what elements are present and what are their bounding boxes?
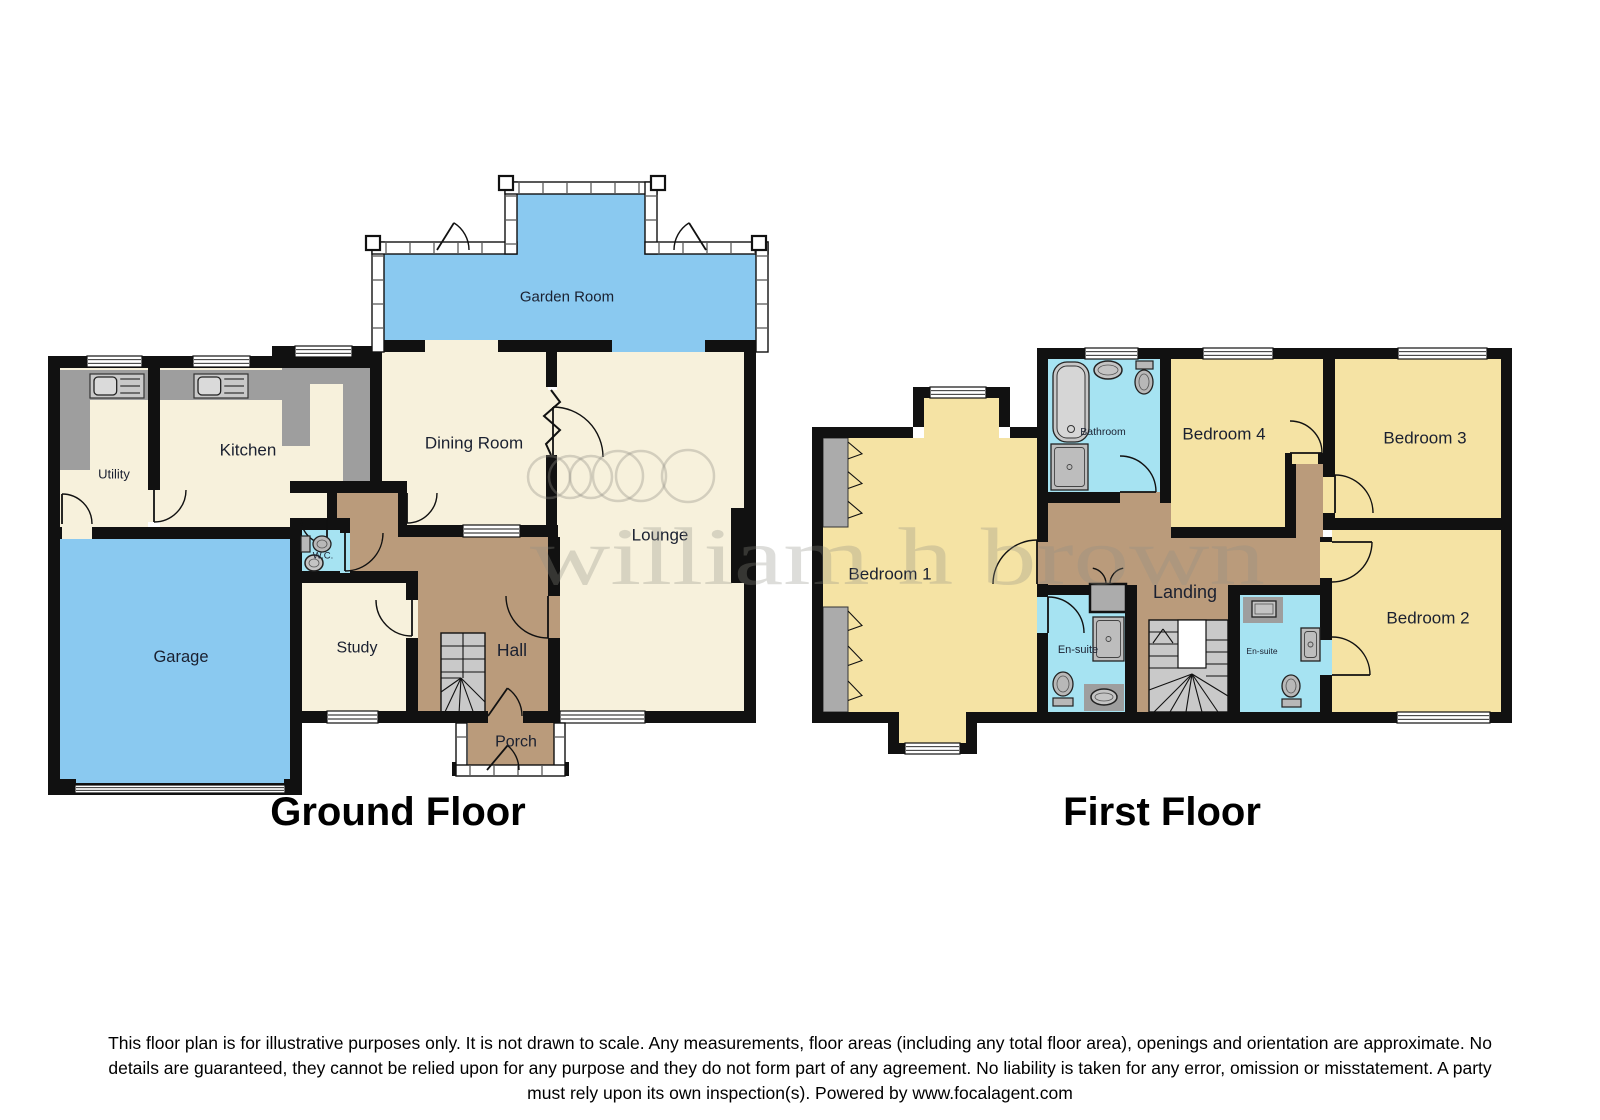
ground-floor-title: Ground Floor	[270, 790, 526, 835]
door-opening	[62, 527, 92, 539]
window	[905, 743, 960, 754]
wall	[548, 638, 560, 711]
fixture-sink	[90, 374, 144, 398]
room-garden-opening-lounge	[612, 340, 705, 352]
wall	[48, 356, 60, 795]
room-label-ensuite-right: En-suite	[1246, 646, 1277, 656]
room-garden-room	[384, 194, 756, 352]
corner-post	[499, 176, 513, 190]
counter-unit	[60, 400, 90, 470]
room-label-garden-room: Garden Room	[520, 289, 614, 306]
window	[1203, 348, 1273, 359]
glazed-frame	[456, 723, 467, 767]
window	[87, 356, 142, 367]
wall	[1285, 464, 1296, 538]
wall	[1160, 348, 1171, 503]
room-label-bedroom-2: Bedroom 2	[1386, 609, 1469, 628]
room-label-garage: Garage	[153, 648, 208, 666]
glazed-frame	[456, 765, 565, 776]
window	[1085, 348, 1138, 359]
window	[327, 711, 378, 723]
fixture-toilet	[1135, 361, 1153, 394]
glazed-frame	[645, 242, 768, 254]
window	[1398, 348, 1487, 359]
room-porch-doorway	[488, 711, 523, 723]
wall	[327, 493, 337, 518]
wall	[1048, 492, 1120, 503]
glazed-frame	[505, 182, 657, 194]
door-opening	[1292, 453, 1318, 464]
room-garden-opening-dining	[425, 340, 498, 352]
disclaimer-line-2: details are guaranteed, they cannot be r…	[0, 1056, 1600, 1081]
window	[193, 356, 250, 367]
window	[560, 711, 645, 723]
glazed-frame	[756, 242, 768, 352]
wall	[406, 638, 418, 711]
fixture-sink	[194, 374, 248, 398]
corner-post	[752, 236, 766, 250]
room-label-bedroom-3: Bedroom 3	[1383, 429, 1466, 448]
wall	[398, 493, 407, 525]
wall	[523, 711, 560, 723]
wall	[406, 583, 418, 600]
wall	[418, 711, 488, 723]
fixture-basin	[1252, 601, 1276, 617]
fixture-toilet	[1282, 675, 1301, 707]
room-label-porch: Porch	[495, 734, 537, 751]
window	[1397, 712, 1490, 723]
window	[295, 346, 352, 357]
wall	[645, 711, 756, 723]
room-label-wc: W.C.	[313, 551, 334, 562]
watermark-text: william h brown	[530, 511, 1265, 602]
room-label-kitchen: Kitchen	[220, 441, 277, 460]
floorplan-drawing: Garden RoomKitchenUtilityDining RoomLoun…	[0, 0, 1600, 1120]
fixture-shower	[1051, 444, 1088, 490]
ground-floor-plan: Garden RoomKitchenUtilityDining RoomLoun…	[48, 176, 768, 795]
wall	[148, 356, 160, 490]
window	[75, 785, 285, 793]
wall	[812, 712, 899, 723]
door-opening	[1320, 542, 1332, 578]
door-opening	[1037, 597, 1048, 633]
wall	[340, 518, 350, 533]
first-floor-title: First Floor	[1063, 790, 1261, 835]
room-landing-stub	[1296, 464, 1323, 537]
counter-unit	[282, 384, 310, 446]
door-opening	[548, 596, 560, 638]
wall	[290, 571, 418, 583]
room-label-dining-room: Dining Room	[425, 434, 523, 453]
room-label-ensuite-left: En-suite	[1058, 644, 1098, 656]
glazed-frame	[372, 242, 517, 254]
counter-unit	[343, 384, 370, 482]
room-label-study: Study	[337, 640, 378, 657]
wall	[1501, 348, 1512, 723]
fixture-oval	[1091, 689, 1117, 705]
window	[463, 525, 520, 537]
wall	[398, 525, 463, 537]
wall-feature	[58, 779, 76, 795]
room-label-bedroom-4: Bedroom 4	[1182, 425, 1265, 444]
corner-post	[651, 176, 665, 190]
disclaimer: This floor plan is for illustrative purp…	[0, 1031, 1600, 1106]
door-opening	[1320, 640, 1332, 675]
door-opening	[1120, 492, 1160, 503]
wall	[340, 573, 350, 583]
window	[930, 387, 986, 398]
room-label-utility: Utility	[98, 467, 130, 482]
wall	[966, 712, 1048, 723]
wall	[1330, 518, 1512, 530]
fixture-toilet	[1053, 672, 1073, 706]
corner-post	[366, 236, 380, 250]
glazed-frame	[372, 242, 384, 352]
floorplan-page: Garden RoomKitchenUtilityDining RoomLoun…	[0, 0, 1600, 1120]
wall	[1228, 585, 1240, 723]
wall	[290, 527, 302, 795]
wall	[498, 340, 612, 352]
disclaimer-line-1: This floor plan is for illustrative purp…	[0, 1031, 1600, 1056]
door-opening	[1323, 477, 1335, 513]
staircase	[1149, 620, 1228, 712]
room-label-hall: Hall	[497, 640, 527, 660]
wall	[370, 346, 382, 493]
disclaimer-line-3: must rely upon its own inspection(s). Po…	[0, 1081, 1600, 1106]
wall	[546, 352, 557, 387]
wall	[290, 481, 407, 493]
staircase	[441, 633, 485, 714]
glazed-frame	[554, 723, 565, 767]
room-label-bathroom: Bathroom	[1080, 426, 1126, 438]
wall	[812, 427, 913, 438]
fixture-shower	[1301, 628, 1320, 661]
fixture-oval	[1094, 361, 1122, 379]
